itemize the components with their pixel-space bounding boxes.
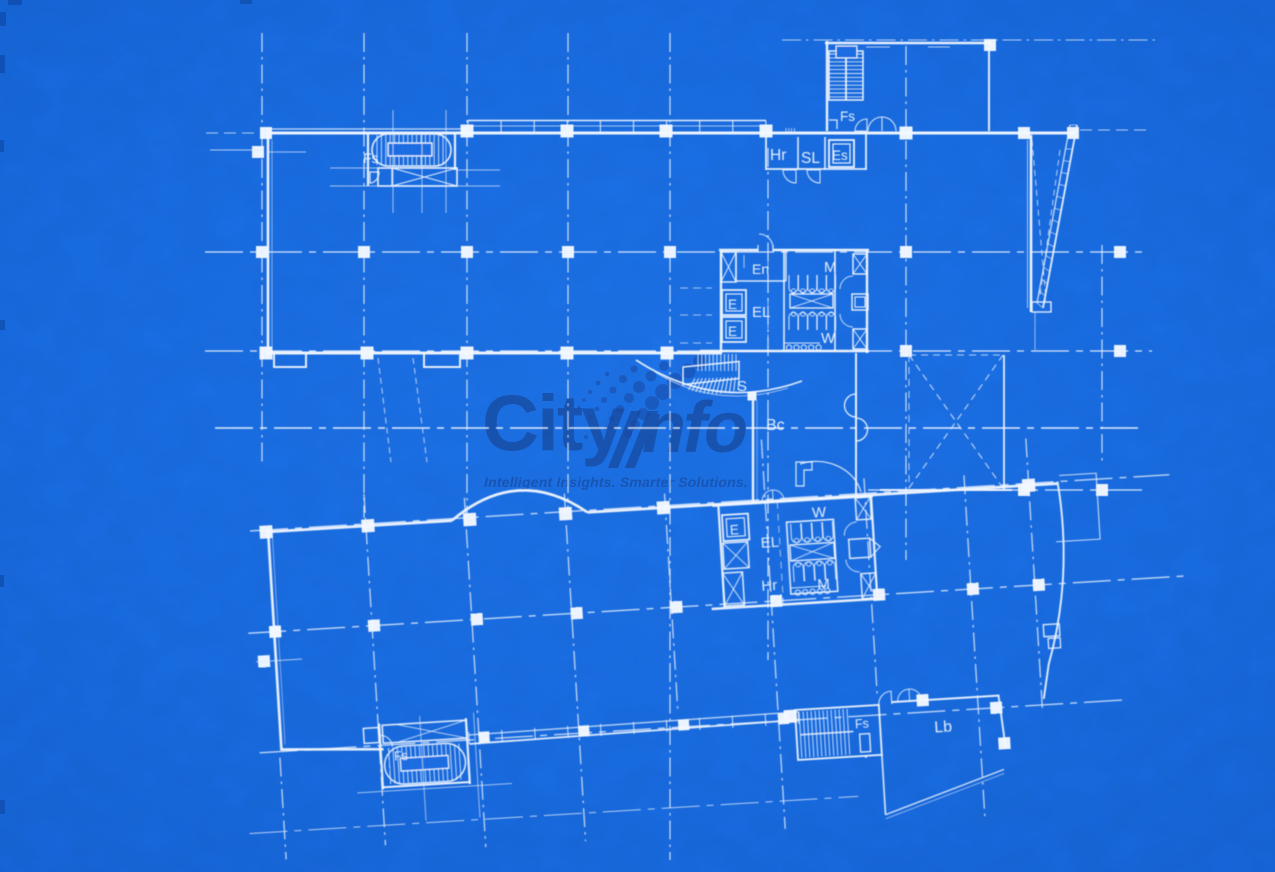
svg-text:EL: EL xyxy=(760,534,779,552)
svg-text:Bc: Bc xyxy=(766,417,785,434)
svg-text:Intelligent Insights. Smarter: Intelligent Insights. Smarter Solutions. xyxy=(484,474,748,490)
svg-text:E: E xyxy=(728,324,737,339)
svg-text:W: W xyxy=(821,330,836,347)
svg-text:City: City xyxy=(482,378,625,467)
svg-text:Fs: Fs xyxy=(840,109,855,124)
svg-text:SL: SL xyxy=(801,150,820,167)
svg-text:En: En xyxy=(752,261,769,277)
svg-text:E: E xyxy=(728,297,737,312)
svg-text:M: M xyxy=(817,576,831,594)
svg-text:Hr: Hr xyxy=(761,577,778,595)
svg-text:Fs: Fs xyxy=(855,717,870,732)
svg-text:M: M xyxy=(824,259,837,276)
svg-text:Lb: Lb xyxy=(934,718,953,736)
svg-text:Fs: Fs xyxy=(394,749,409,764)
svg-text:E: E xyxy=(729,522,739,538)
svg-text:Hr: Hr xyxy=(770,147,786,164)
svg-text:W: W xyxy=(811,504,827,522)
svg-text:Fs: Fs xyxy=(363,150,379,166)
svg-text:Es: Es xyxy=(832,148,848,163)
